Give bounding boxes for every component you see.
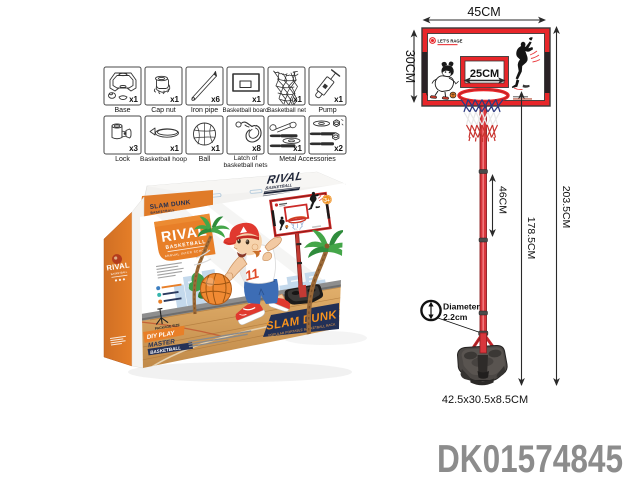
svg-text:x1: x1 <box>129 95 138 104</box>
svg-text:45CM: 45CM <box>467 5 500 19</box>
svg-text:Basketball net: Basketball net <box>267 107 306 114</box>
svg-text:x1: x1 <box>170 95 179 104</box>
svg-text:46CM: 46CM <box>497 186 509 214</box>
svg-text:Metal Accessories: Metal Accessories <box>279 156 336 163</box>
svg-text:basketball nets: basketball nets <box>224 162 269 169</box>
svg-text:x1: x1 <box>252 95 261 104</box>
svg-text:x1: x1 <box>293 95 302 104</box>
svg-text:Iron pipe: Iron pipe <box>191 107 218 114</box>
svg-text:Basketball board: Basketball board <box>222 107 269 114</box>
svg-text:Latch of: Latch of <box>234 155 258 162</box>
svg-text:42.5x30.5x8.5CM: 42.5x30.5x8.5CM <box>442 394 528 406</box>
svg-text:DK01574845: DK01574845 <box>437 438 623 480</box>
svg-text:Cap nut: Cap nut <box>151 107 176 114</box>
svg-text:203.5CM: 203.5CM <box>560 186 572 229</box>
svg-text:x1: x1 <box>293 144 302 153</box>
svg-text:Ball: Ball <box>199 156 211 163</box>
svg-text:Base: Base <box>115 107 131 114</box>
svg-text:30CM: 30CM <box>403 50 417 83</box>
svg-text:x1: x1 <box>211 144 220 153</box>
svg-text:x2: x2 <box>334 144 343 153</box>
svg-text:178.5CM: 178.5CM <box>525 217 537 260</box>
svg-text:25CM: 25CM <box>470 68 499 80</box>
svg-text:Diameter: Diameter <box>443 302 480 312</box>
svg-text:x8: x8 <box>252 144 261 153</box>
svg-text:Lock: Lock <box>115 156 130 163</box>
svg-text:3+: 3+ <box>324 198 330 204</box>
svg-text:Basketball hoop: Basketball hoop <box>140 156 187 163</box>
svg-text:2.2cm: 2.2cm <box>443 312 468 322</box>
svg-text:x3: x3 <box>129 144 138 153</box>
svg-text:LET'S RAGE: LET'S RAGE <box>438 39 463 44</box>
svg-text:x6: x6 <box>211 95 220 104</box>
svg-text:x1: x1 <box>170 144 179 153</box>
svg-text:x1: x1 <box>334 95 343 104</box>
svg-text:Pump: Pump <box>318 107 336 114</box>
